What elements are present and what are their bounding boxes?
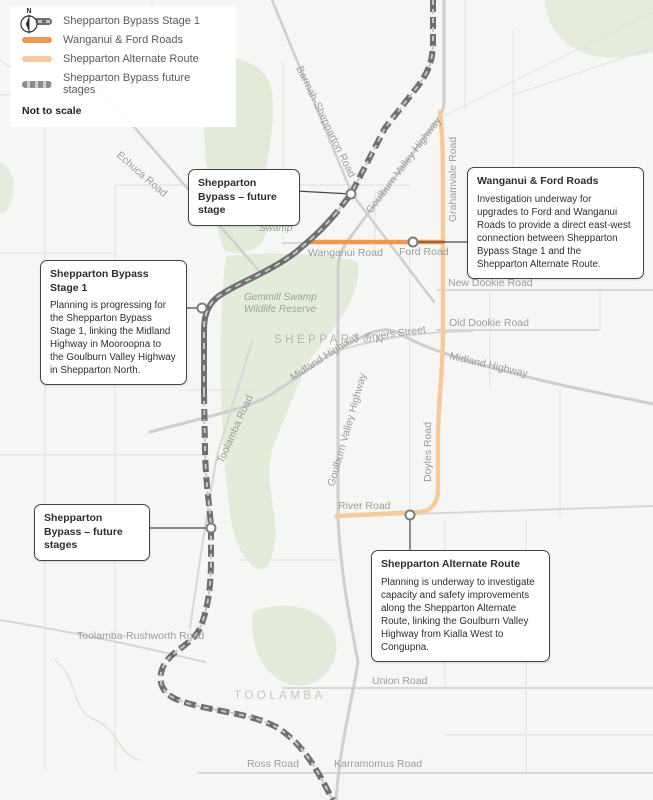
reserve-label-wildlife: Wildlife Reserve: [244, 304, 317, 315]
road-label-toolamba-rushworth: Toolamba-Rushworth Road: [77, 630, 204, 642]
legend-label-future: Shepparton Bypass future stages: [63, 72, 224, 96]
scale-note: Not to scale: [22, 105, 82, 117]
node-future-stage: [347, 190, 356, 199]
road-label-ross: Ross Road: [247, 758, 299, 770]
callout-title: Shepparton Bypass – future stage: [198, 177, 290, 218]
legend-label-stage1: Shepparton Bypass Stage 1: [63, 15, 200, 27]
legend-item-alternate: Shepparton Alternate Route: [22, 53, 224, 65]
legend-item-future: Shepparton Bypass future stages: [22, 72, 224, 96]
place-label-shepparton: SHEPPARTON: [274, 334, 387, 346]
callout-title: Shepparton Bypass Stage 1: [50, 268, 177, 295]
road-label-ford: Ford Road: [399, 246, 449, 258]
callout-body: Investigation underway for upgrades to F…: [477, 193, 634, 271]
road-label-river: River Road: [338, 500, 391, 512]
legend-label-wanganui: Wanganui & Ford Roads: [63, 34, 183, 46]
road-label-grahamvale: Grahamvale Road: [447, 137, 459, 222]
road-label-old-dookie: Old Dookie Road: [449, 317, 529, 329]
road-label-union: Union Road: [372, 675, 428, 687]
legend-item-stage1: Shepparton Bypass Stage 1: [22, 15, 224, 27]
callout-title: Wanganui & Ford Roads: [477, 175, 634, 189]
map-canvas: Barmah-Shepparton Road Echuca Road Goulb…: [0, 0, 653, 800]
road-label-new-dookie: New Dookie Road: [448, 277, 533, 289]
place-label-toolamba: TOOLAMBA: [234, 690, 326, 702]
node-alternate-route: [406, 511, 415, 520]
callout-wanganui-ford: Wanganui & Ford Roads Investigation unde…: [467, 167, 644, 279]
callout-stage1: Shepparton Bypass Stage 1 Planning is pr…: [40, 260, 187, 385]
callout-alternate-route: Shepparton Alternate Route Planning is u…: [371, 550, 550, 662]
callout-future-stages: Shepparton Bypass – future stages: [34, 504, 150, 561]
compass-letter: N: [26, 8, 31, 15]
callout-title: Shepparton Bypass – future stages: [44, 512, 140, 553]
callout-body: Planning is progressing for the Sheppart…: [50, 299, 177, 377]
road-label-karramomus: Karramomus Road: [334, 758, 422, 770]
legend-swatch-wanganui: [22, 37, 52, 43]
callout-future-stage: Shepparton Bypass – future stage: [188, 169, 300, 226]
node-future-stages: [207, 524, 216, 533]
road-label-wanganui: Wanganui Road: [308, 247, 383, 259]
legend-label-alternate: Shepparton Alternate Route: [63, 53, 199, 65]
legend-item-wanganui: Wanganui & Ford Roads: [22, 34, 224, 46]
road-label-doyles: Doyles Road: [422, 422, 434, 482]
reserve-label-gemmill: Gemmill Swamp: [244, 292, 317, 303]
node-stage1: [198, 304, 207, 313]
callout-body: Planning is underway to investigate capa…: [381, 576, 540, 654]
legend-swatch-alternate: [22, 56, 52, 62]
legend-panel: Shepparton Bypass Stage 1 Wanganui & For…: [10, 6, 236, 127]
callout-title: Shepparton Alternate Route: [381, 558, 540, 572]
compass-icon: N: [18, 6, 40, 36]
legend-swatch-future: [22, 81, 52, 88]
compass-row: N Not to scale: [22, 105, 224, 117]
